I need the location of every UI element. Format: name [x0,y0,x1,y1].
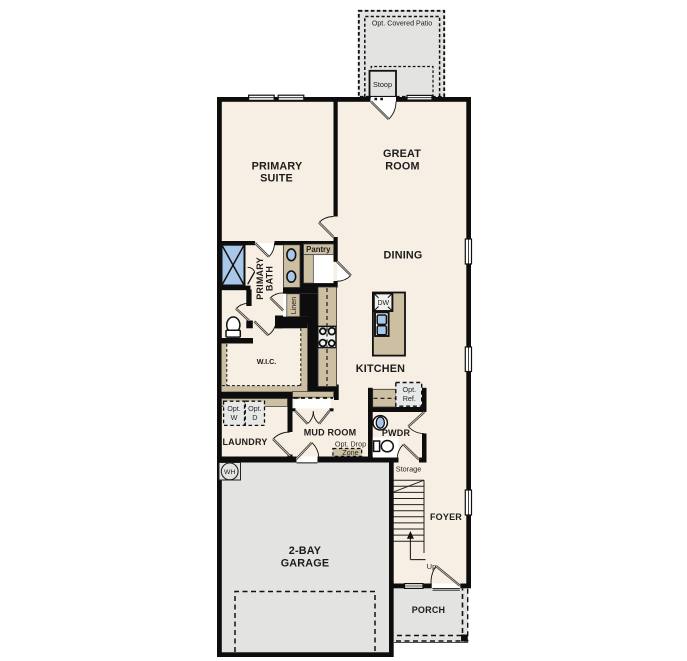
svg-text:PRIMARY: PRIMARY [252,160,303,172]
svg-text:LAUNDRY: LAUNDRY [222,437,267,447]
svg-text:PWDR: PWDR [382,428,411,438]
svg-text:FOYER: FOYER [430,512,462,522]
svg-text:Ref.: Ref. [403,394,416,403]
svg-text:2-BAY: 2-BAY [289,545,322,557]
svg-text:KITCHEN: KITCHEN [356,363,405,375]
svg-text:D: D [252,413,257,422]
svg-text:GREAT: GREAT [383,148,421,160]
svg-text:Pantry: Pantry [306,245,331,254]
svg-text:Opt.: Opt. [248,404,262,413]
svg-text:ROOM: ROOM [385,160,419,172]
svg-text:Opt.: Opt. [403,385,417,394]
svg-text:SUITE: SUITE [260,173,293,185]
svg-text:Opt. Covered Patio: Opt. Covered Patio [372,19,432,27]
svg-text:W: W [231,413,238,422]
svg-text:PORCH: PORCH [412,605,446,615]
svg-text:Storage: Storage [396,464,422,473]
svg-text:DW: DW [377,300,389,307]
svg-text:GARAGE: GARAGE [281,557,330,569]
svg-text:BATH: BATH [264,266,274,291]
svg-text:WH: WH [224,469,235,476]
svg-text:DINING: DINING [384,249,423,261]
svg-text:Up: Up [427,562,436,571]
svg-text:W.I.C.: W.I.C. [257,357,277,366]
svg-text:Opt.: Opt. [227,404,241,413]
svg-text:Linen: Linen [289,297,298,315]
svg-text:Stoop: Stoop [373,80,392,89]
svg-text:MUD ROOM: MUD ROOM [304,428,357,438]
svg-text:Zone: Zone [342,448,358,457]
